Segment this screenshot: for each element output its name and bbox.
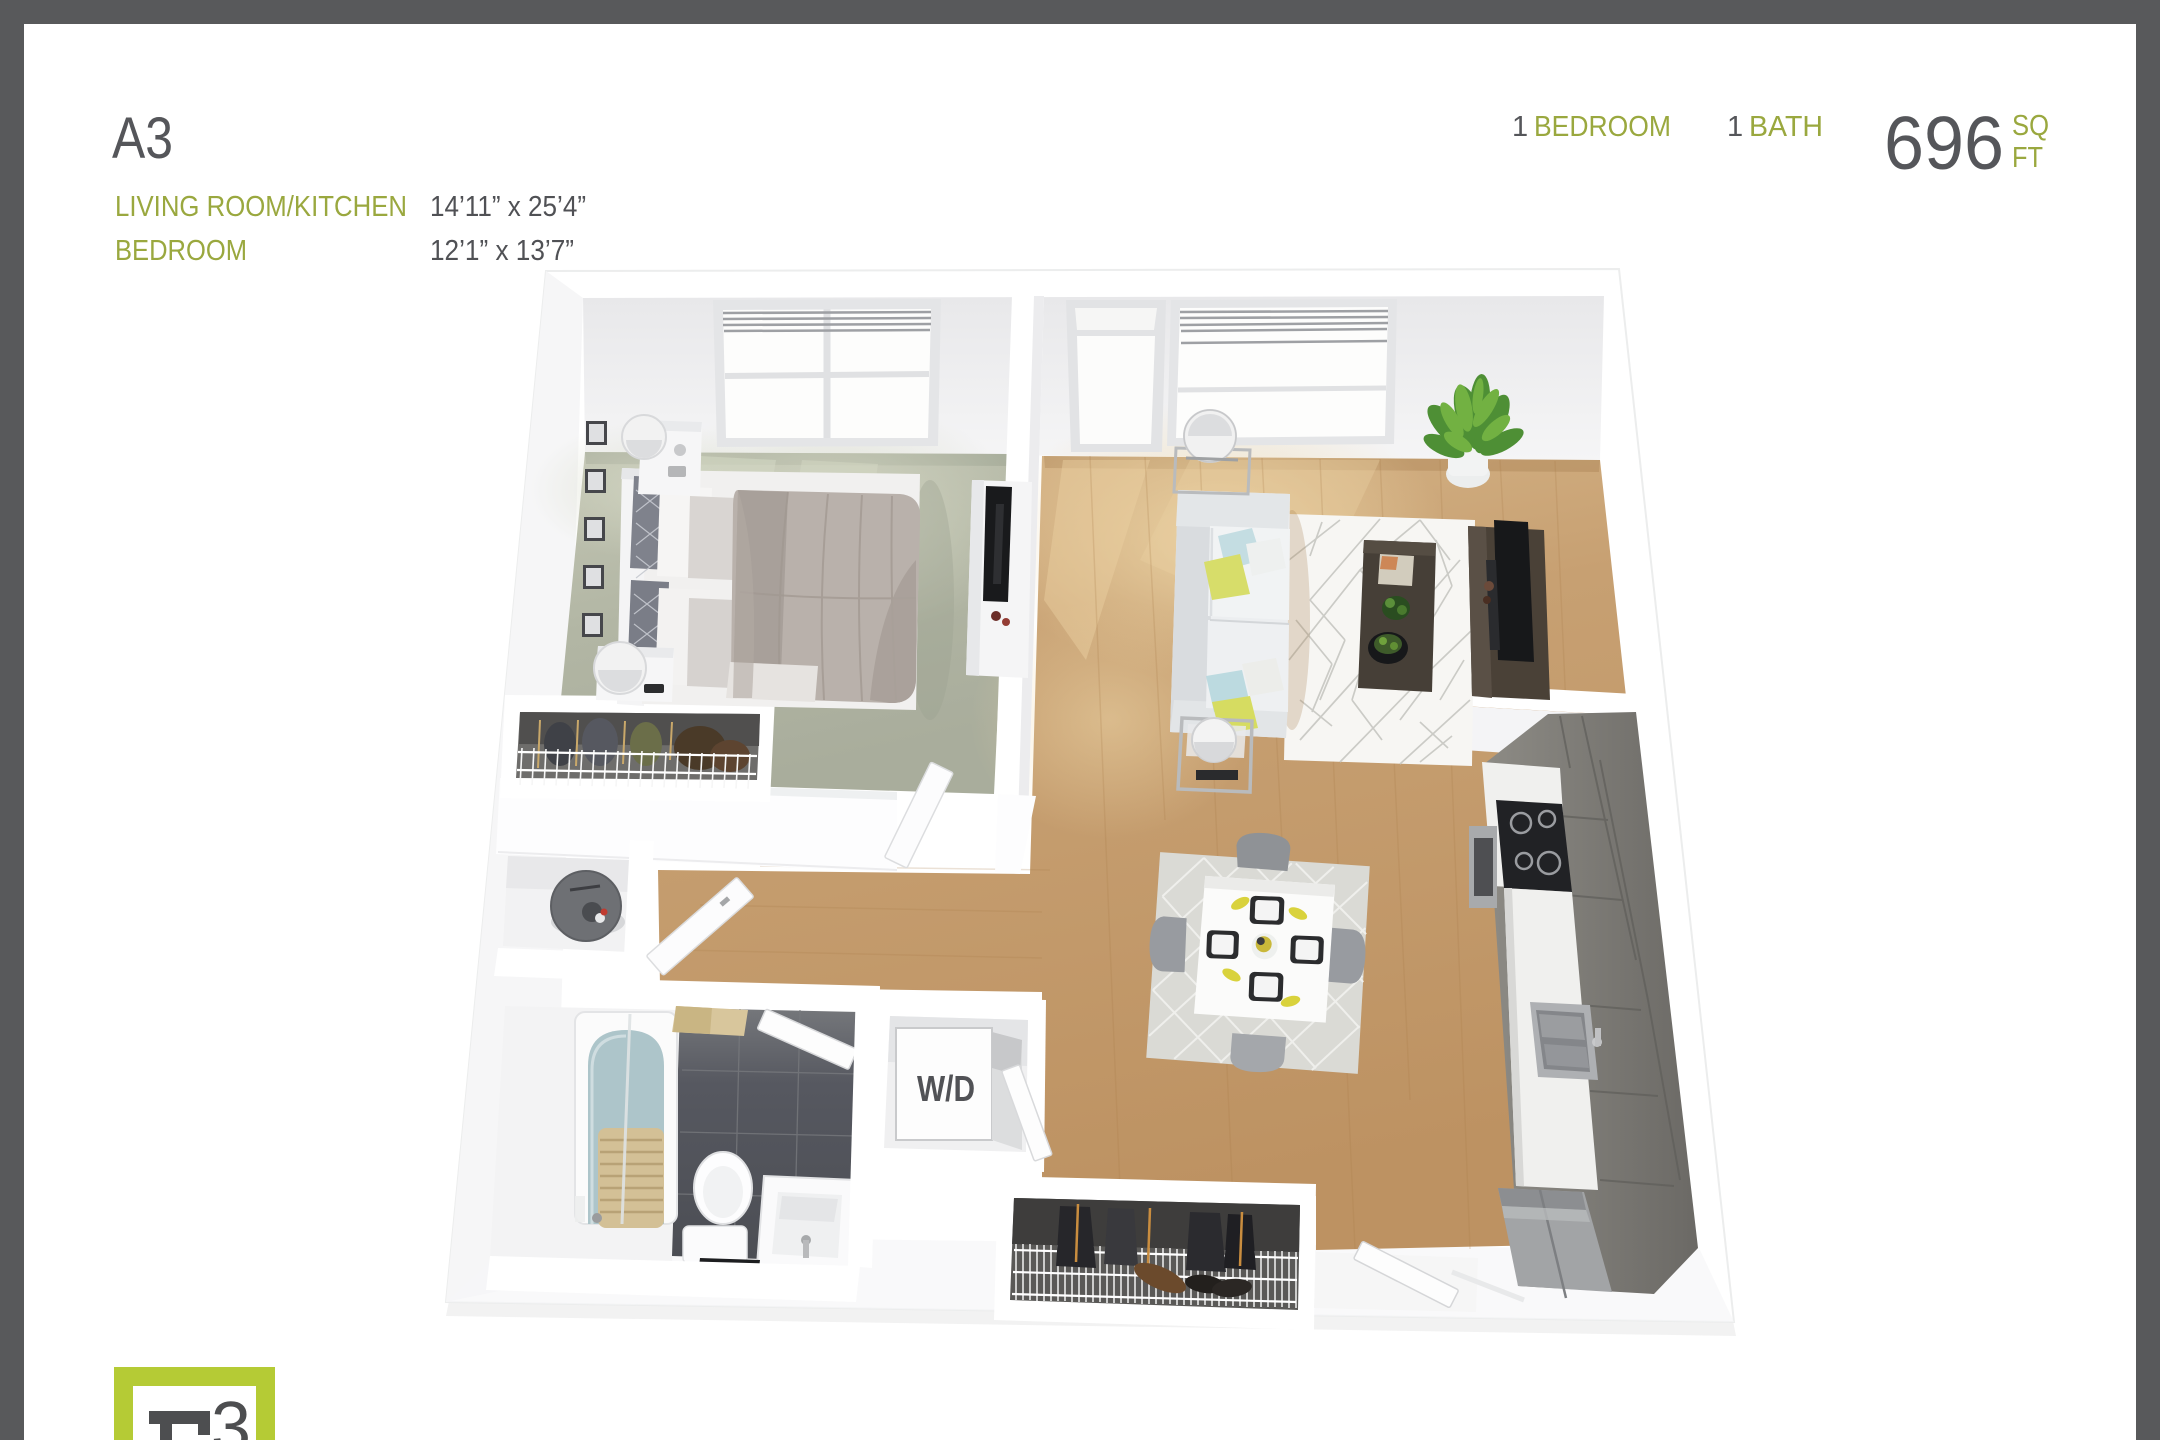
svg-text:LIVING ROOM/KITCHEN: LIVING ROOM/KITCHEN xyxy=(115,191,407,223)
svg-text:A3: A3 xyxy=(112,106,173,171)
svg-text:1: 1 xyxy=(1727,111,1743,143)
svg-text:BEDROOM: BEDROOM xyxy=(1534,111,1671,143)
svg-text:FT: FT xyxy=(2012,142,2043,174)
svg-text:3: 3 xyxy=(211,1388,251,1440)
svg-text:W/D: W/D xyxy=(917,1068,975,1109)
svg-text:12’1” x 13’7”: 12’1” x 13’7” xyxy=(430,235,574,267)
svg-text:BEDROOM: BEDROOM xyxy=(115,235,247,267)
svg-text:SQ: SQ xyxy=(2012,110,2049,142)
svg-text:696: 696 xyxy=(1884,101,2004,185)
svg-text:BATH: BATH xyxy=(1749,111,1823,143)
svg-text:14’11” x 25’4”: 14’11” x 25’4” xyxy=(430,191,586,223)
svg-text:1: 1 xyxy=(1512,111,1528,143)
